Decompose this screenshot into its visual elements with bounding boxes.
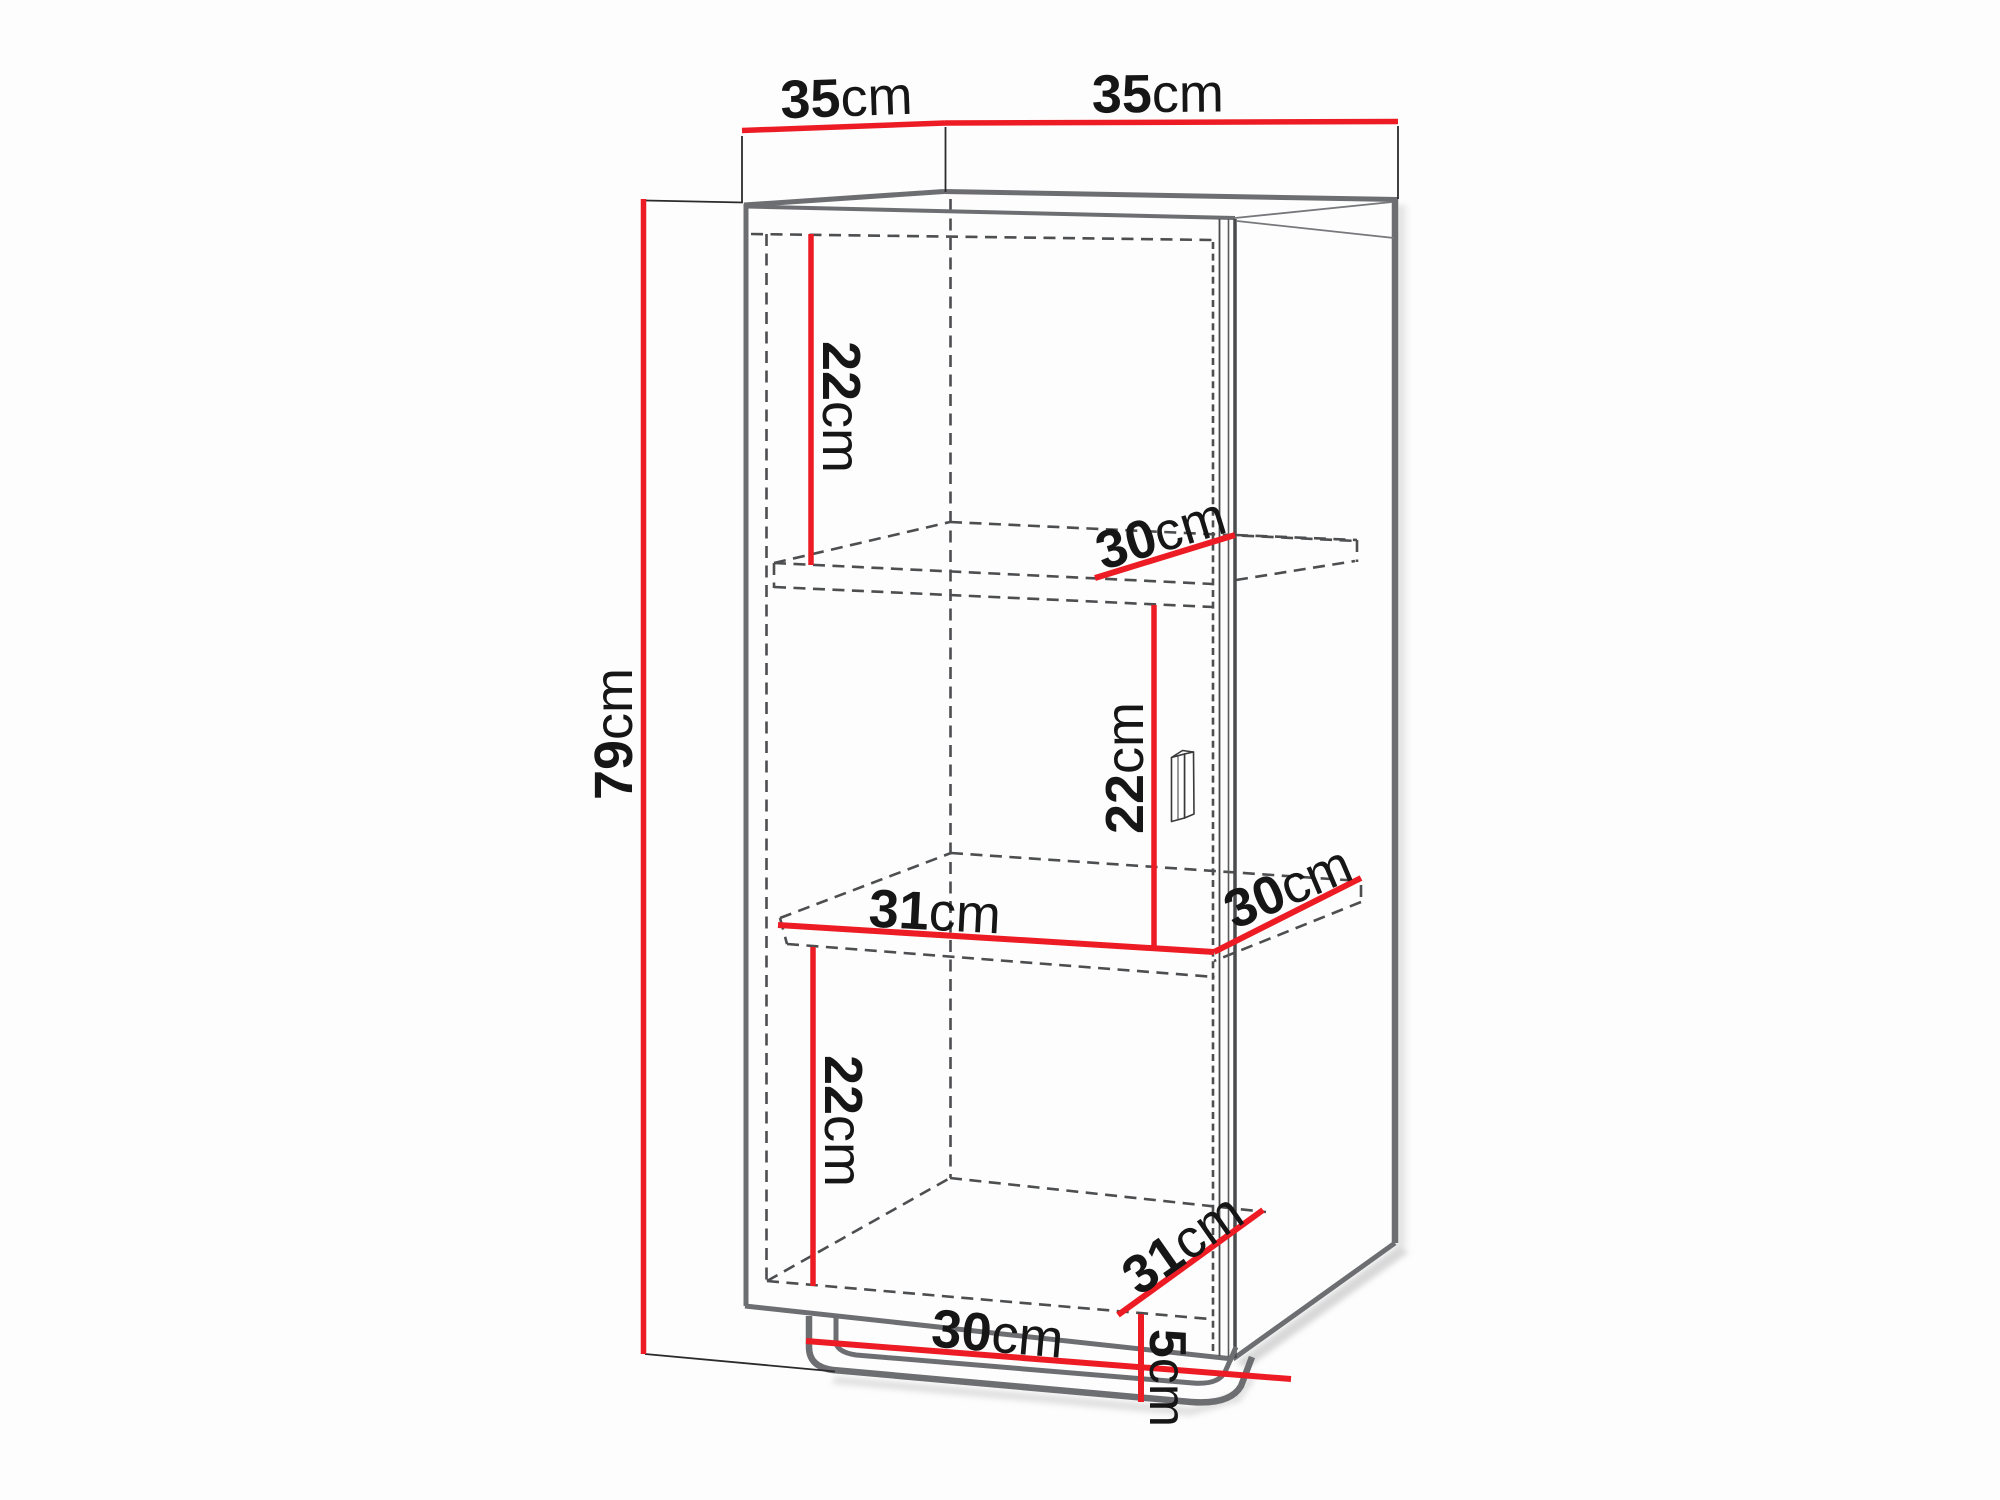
svg-text:22cm: 22cm bbox=[1095, 702, 1155, 834]
svg-text:5cm: 5cm bbox=[1138, 1329, 1196, 1427]
svg-text:22cm: 22cm bbox=[811, 341, 871, 473]
svg-text:31cm: 31cm bbox=[867, 879, 1002, 946]
svg-text:35cm: 35cm bbox=[779, 66, 913, 131]
svg-text:22cm: 22cm bbox=[813, 1055, 873, 1187]
svg-text:79cm: 79cm bbox=[584, 668, 644, 800]
svg-text:35cm: 35cm bbox=[1092, 63, 1225, 124]
svg-text:30cm: 30cm bbox=[929, 1298, 1066, 1369]
